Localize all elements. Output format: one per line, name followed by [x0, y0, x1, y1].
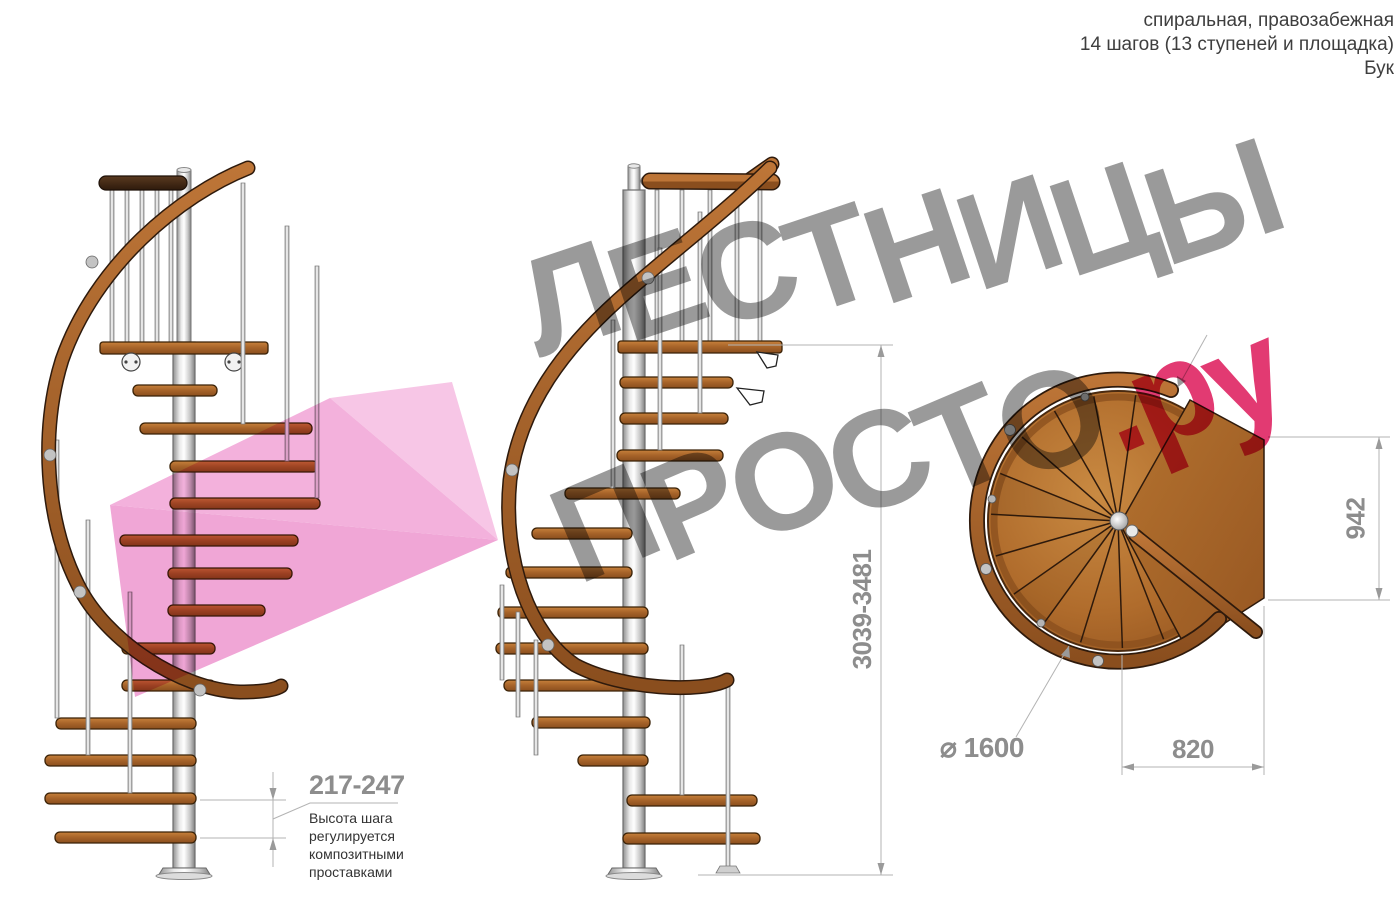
dim-label-diameter: ⌀ 1600 [940, 731, 1024, 764]
staircase-drawing-sheet: ЛЕСТНИЦЫ ПРОСТО.ру спиральная, правозабе… [0, 0, 1400, 914]
stair-material-line: Бук [1080, 57, 1394, 81]
dim-label-landing-width: 942 [1341, 419, 1372, 619]
stair-type-line: спиральная, правозабежная [1080, 9, 1394, 33]
stair-steps-line: 14 шагов (13 ступеней и площадка) [1080, 33, 1394, 57]
step-note-line1: Высота шага [309, 809, 393, 827]
step-note-line2: регулируется [309, 827, 395, 845]
pink-arrow-watermark [0, 0, 1400, 914]
dim-label-landing-depth: 820 [1122, 734, 1264, 765]
title-block: спиральная, правозабежная 14 шагов (13 с… [1080, 9, 1394, 81]
dim-label-total-height: 3039-3481 [847, 517, 878, 702]
step-note-line3: композитными [309, 845, 404, 863]
dim-label-step-height: 217-247 [309, 770, 405, 801]
step-note-line4: проставками [309, 863, 392, 881]
